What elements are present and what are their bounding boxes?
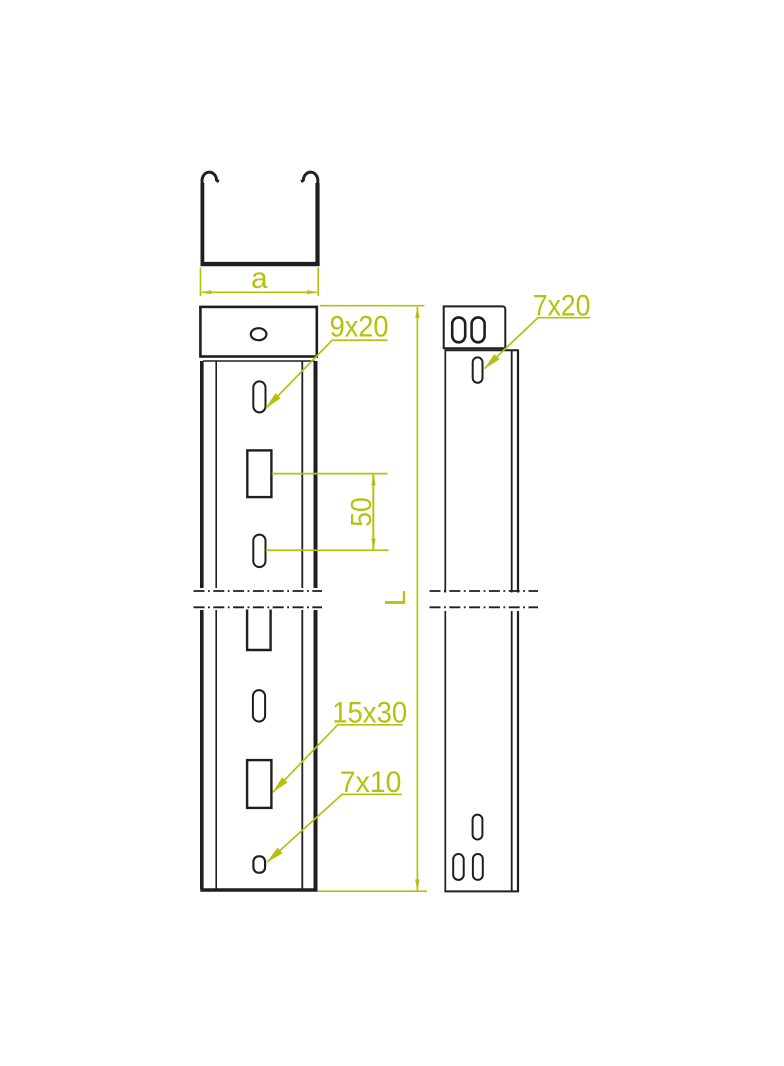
svg-text:9x20: 9x20 <box>330 310 389 343</box>
svg-text:50: 50 <box>346 497 378 527</box>
svg-text:7x10: 7x10 <box>340 766 402 799</box>
svg-text:15x30: 15x30 <box>332 696 407 729</box>
svg-text:a: a <box>251 262 268 295</box>
svg-text:L: L <box>380 590 412 606</box>
svg-text:7x20: 7x20 <box>533 289 591 322</box>
